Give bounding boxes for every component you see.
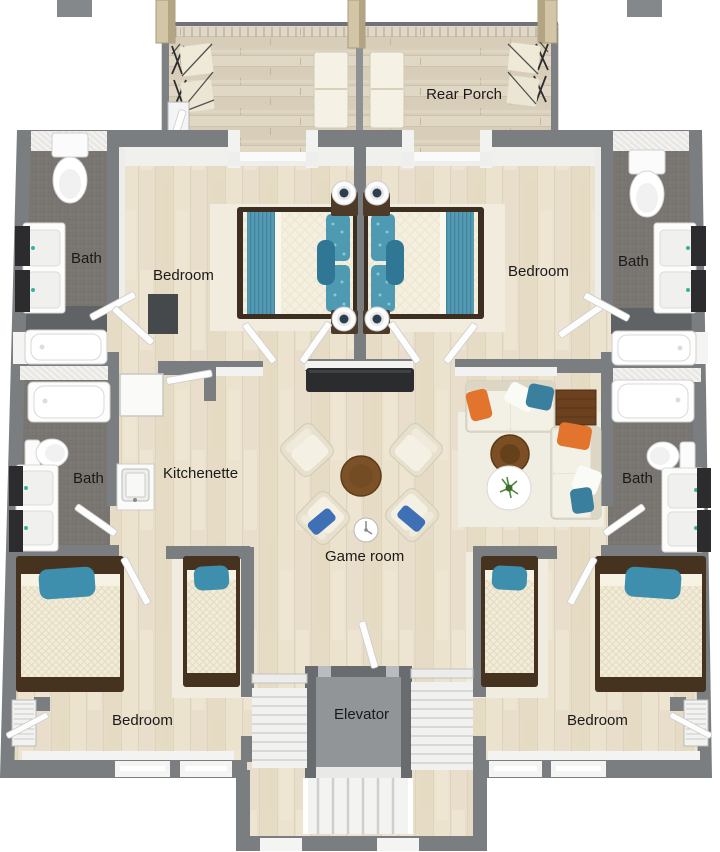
svg-text:Elevator: Elevator (334, 706, 389, 723)
svg-text:Rear Porch: Rear Porch (426, 86, 502, 103)
svg-text:Bedroom: Bedroom (508, 263, 569, 280)
svg-text:Kitchenette: Kitchenette (163, 465, 238, 482)
svg-text:Bedroom: Bedroom (153, 267, 214, 284)
svg-text:Game room: Game room (325, 548, 404, 565)
svg-text:Bedroom: Bedroom (567, 712, 628, 729)
svg-text:Bath: Bath (618, 253, 649, 270)
svg-text:Bath: Bath (71, 250, 102, 267)
svg-text:Bath: Bath (73, 470, 104, 487)
svg-text:Bath: Bath (622, 470, 653, 487)
svg-text:Bedroom: Bedroom (112, 712, 173, 729)
